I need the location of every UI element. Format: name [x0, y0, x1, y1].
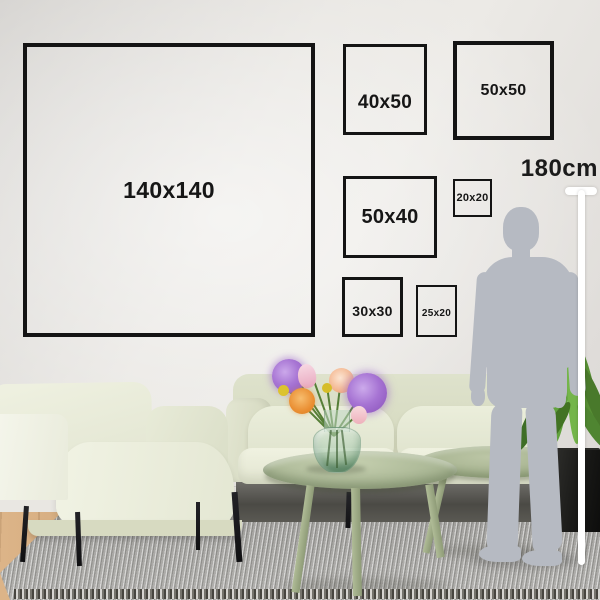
armchair-seat-cushion	[56, 442, 234, 528]
frame-size-label: 140x140	[123, 179, 215, 202]
silhouette-right-foot	[522, 550, 562, 566]
frame-50x40: 50x40	[343, 176, 437, 258]
frame-30x30: 30x30	[342, 277, 403, 337]
armchair-front-armrest	[0, 414, 68, 500]
table-leg	[351, 488, 362, 596]
frame-size-label: 50x40	[361, 207, 418, 227]
measure-stick-line	[578, 190, 585, 565]
flower-yellow-button	[278, 385, 289, 396]
flower-pink-bud	[351, 406, 367, 424]
flower-yellow-button	[322, 383, 332, 393]
frame-50x50: 50x50	[453, 41, 554, 140]
frame-25x20: 25x20	[416, 285, 457, 337]
armchair-base	[28, 520, 242, 536]
rug-fringe	[14, 589, 600, 599]
armchair-leg	[196, 502, 200, 550]
silhouette-left-hand	[471, 386, 485, 406]
frame-140x140: 140x140	[23, 43, 315, 337]
frame-20x20: 20x20	[453, 179, 492, 217]
stem-in-vase	[336, 430, 338, 468]
frame-size-label: 50x50	[481, 83, 527, 99]
frame-size-label: 40x50	[358, 93, 412, 112]
frame-size-guide-scene: 180cm 140x140 40x50 50x50 50x40 20x20 30…	[0, 0, 600, 600]
silhouette-torso	[481, 257, 574, 369]
silhouette-left-foot	[479, 545, 521, 562]
frame-40x50: 40x50	[343, 44, 427, 135]
silhouette-left-leg	[486, 402, 522, 555]
flower-orange-pincushion	[289, 388, 315, 414]
frame-size-label: 30x30	[352, 304, 392, 318]
frame-size-label: 20x20	[456, 193, 488, 204]
frame-size-label: 25x20	[422, 309, 451, 319]
silhouette-hips	[487, 360, 567, 408]
height-label: 180cm	[498, 155, 598, 183]
